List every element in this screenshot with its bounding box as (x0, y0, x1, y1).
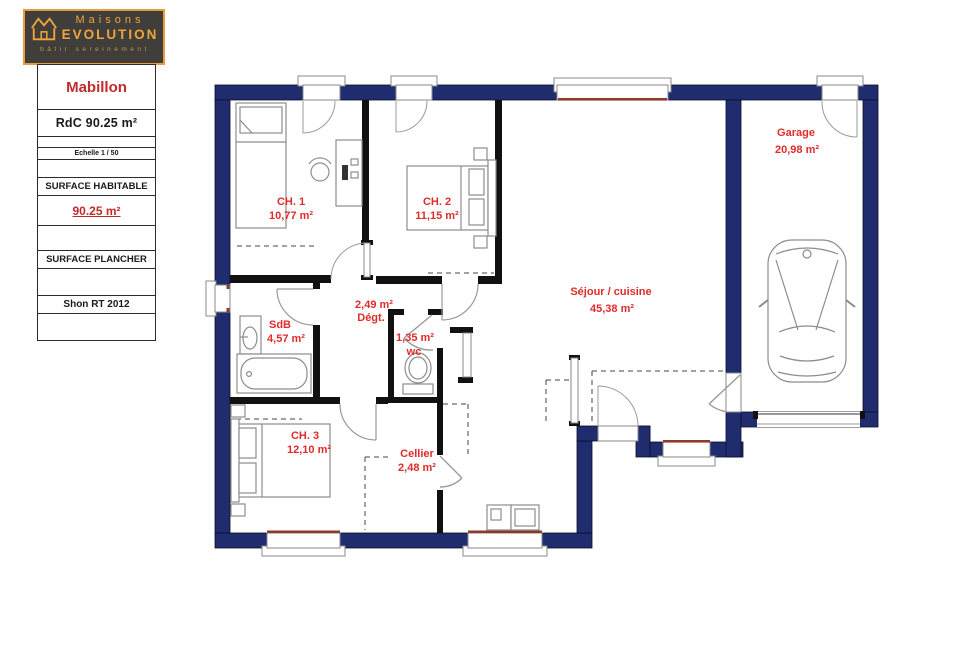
sejour-area: 45,38 m² (590, 303, 634, 315)
car (759, 240, 855, 382)
ch3-area: 12,10 m² (287, 444, 331, 456)
ch3-label: CH. 3 (291, 430, 319, 442)
garage-side-door (817, 76, 863, 100)
toilet (403, 353, 433, 394)
ch2-bed (407, 148, 496, 248)
furniture (231, 103, 855, 530)
kitchen-window (463, 531, 547, 557)
garage-west-door-opening (726, 373, 741, 412)
ch2-window (391, 76, 437, 100)
porch-window (658, 440, 715, 466)
wc-area: 1,35 m² (396, 332, 434, 344)
kitchen-counter (487, 505, 539, 530)
sdb-window (206, 281, 230, 316)
bathtub (237, 354, 311, 393)
floor-plan: CH. 1 10,77 m² CH. 2 11,15 m² SdB 4,57 m… (0, 0, 960, 651)
garage-area: 20,98 m² (775, 144, 819, 156)
ch1-area: 10,77 m² (269, 210, 313, 222)
ch2-label: CH. 2 (423, 196, 451, 208)
desk-and-chair (309, 140, 362, 206)
entry-door-opening (598, 426, 638, 441)
ch3-window (262, 531, 345, 557)
ch2-area: 11,15 m² (415, 210, 459, 222)
cellier-area: 2,48 m² (398, 462, 436, 474)
ch1-window (298, 76, 345, 100)
degt-label: Dégt. (357, 312, 385, 324)
cellier-label: Cellier (400, 448, 434, 460)
sdb-label: SdB (269, 319, 291, 331)
sejour-window (554, 78, 671, 101)
wc-label: wc (406, 346, 422, 358)
garage-door (753, 411, 865, 427)
ch3-bed (231, 405, 330, 516)
sdb-area: 4,57 m² (267, 333, 305, 345)
bathroom-sink (240, 316, 261, 354)
degt-area: 2,49 m² (355, 299, 393, 311)
sejour-label: Séjour / cuisine (570, 286, 651, 298)
garage-label: Garage (777, 127, 815, 139)
ch1-label: CH. 1 (277, 196, 305, 208)
floor-plan-sheet: Maisons EVOLUTION bâtir sereinement Mabi… (0, 0, 960, 651)
